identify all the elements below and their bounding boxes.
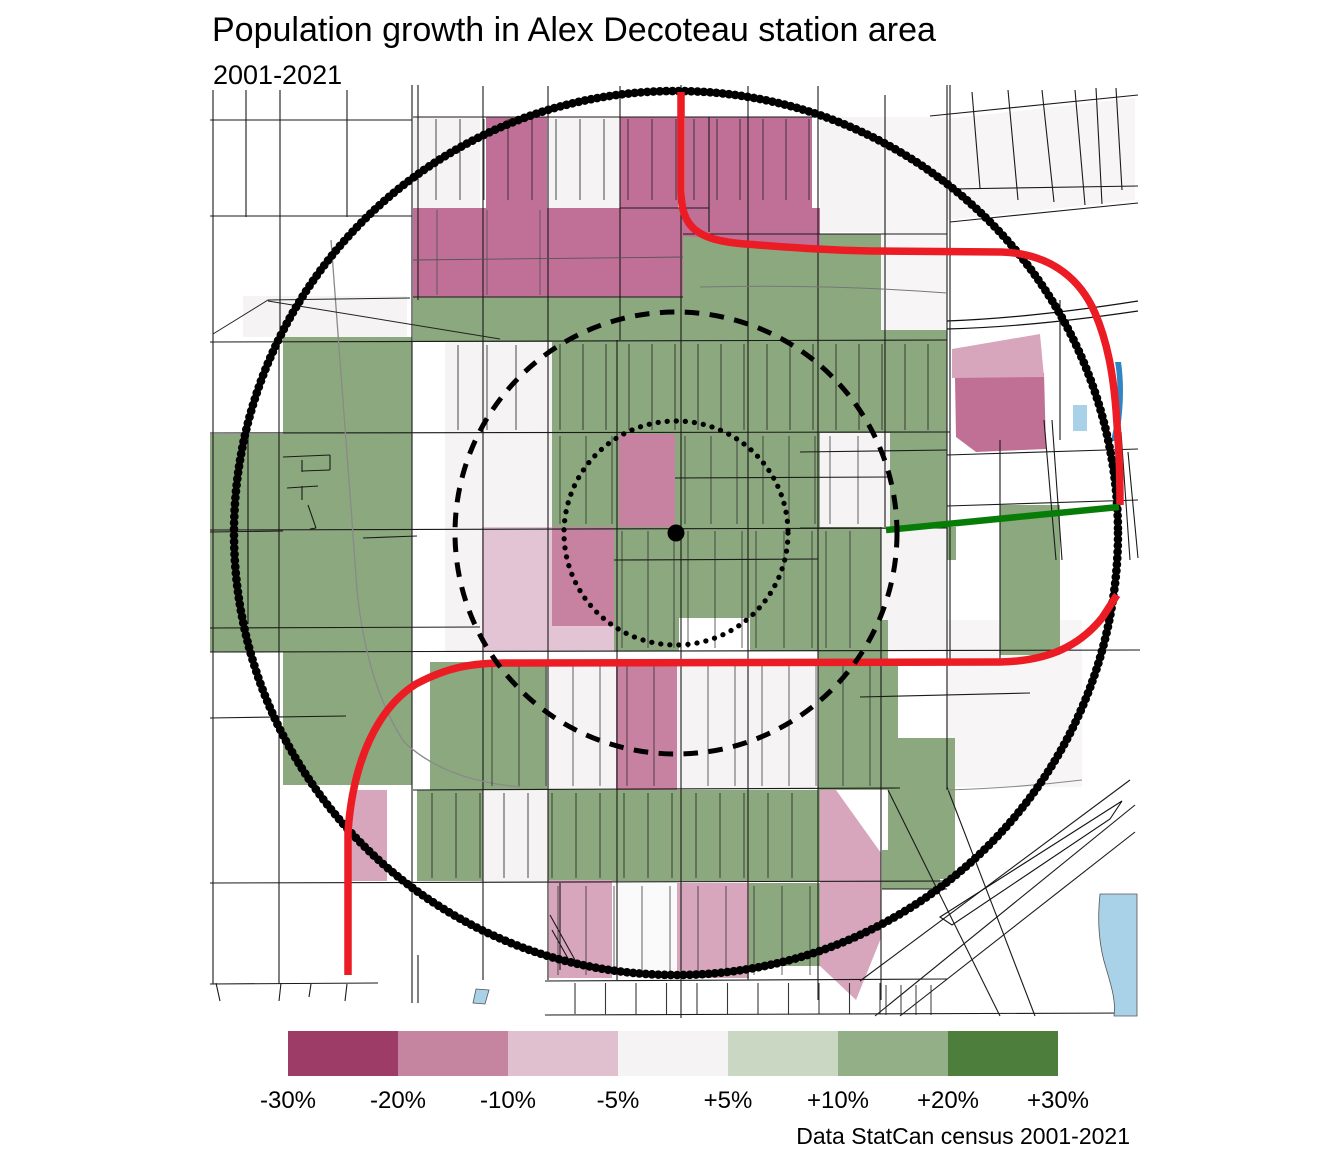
svg-text:+10%: +10%	[807, 1087, 869, 1114]
svg-text:2001-2021: 2001-2021	[213, 60, 342, 90]
svg-text:Population growth in Alex Deco: Population growth in Alex Decoteau stati…	[212, 11, 936, 49]
svg-text:-5%: -5%	[597, 1087, 640, 1114]
svg-text:-30%: -30%	[260, 1087, 316, 1114]
svg-text:Data StatCan census 2001-2021: Data StatCan census 2001-2021	[796, 1123, 1130, 1149]
svg-text:+30%: +30%	[1027, 1087, 1089, 1114]
svg-text:-10%: -10%	[480, 1087, 536, 1114]
svg-text:-20%: -20%	[370, 1087, 426, 1114]
svg-text:+20%: +20%	[917, 1087, 979, 1114]
svg-text:+5%: +5%	[704, 1087, 753, 1114]
